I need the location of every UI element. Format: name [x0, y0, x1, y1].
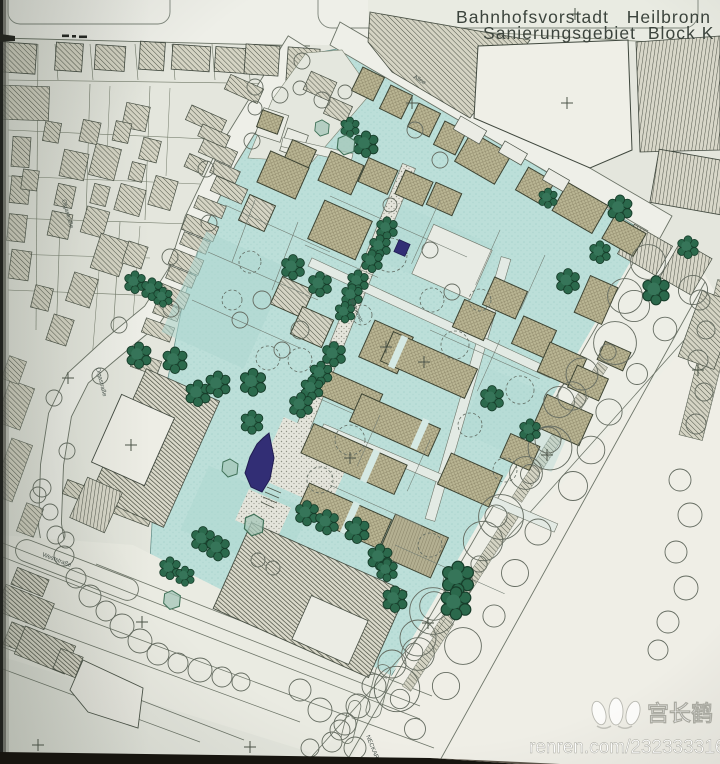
svg-text:renren.com/232333316: renren.com/232333316	[529, 737, 720, 758]
svg-text:宫长鹤: 宫长鹤	[647, 701, 713, 726]
